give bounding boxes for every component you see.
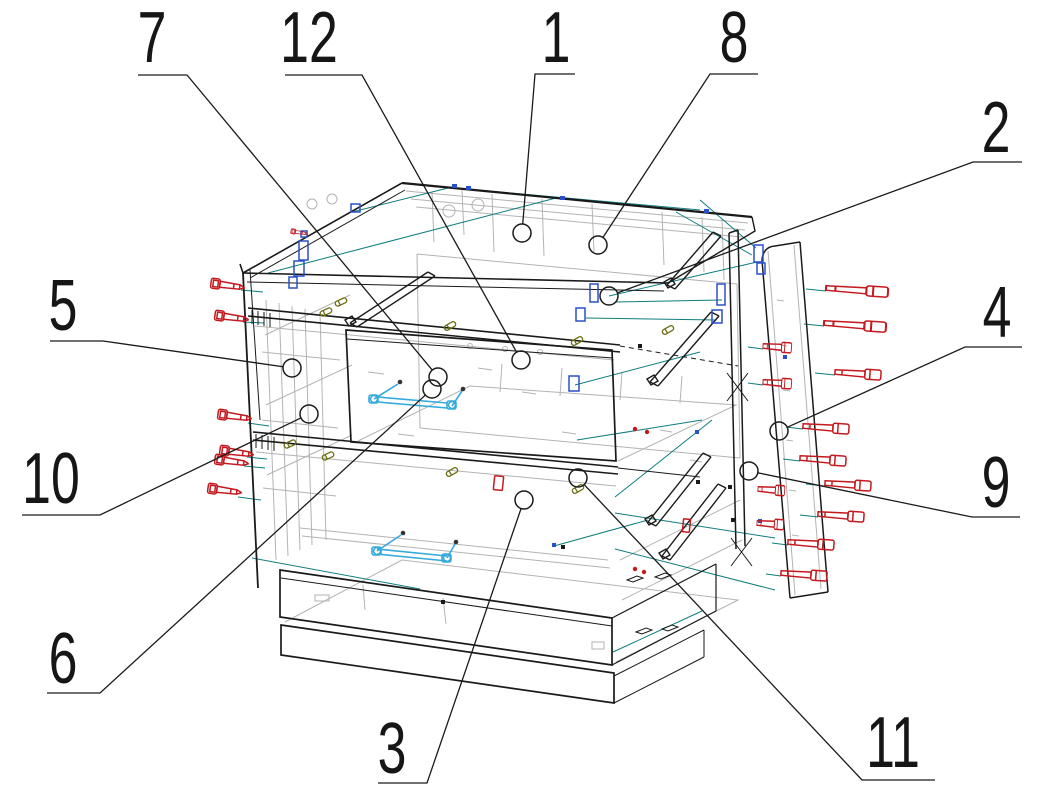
callout-label-4: 4 (983, 273, 1012, 353)
bottom-shelf-edge (253, 432, 618, 474)
confirmat-screw-icon (826, 283, 889, 297)
handle-screw-dot (454, 540, 459, 545)
handle-screw-dot (461, 387, 466, 392)
lower-drawer-box-front (280, 570, 612, 665)
callout-target-5 (283, 359, 301, 377)
confirmat-screw-icon (210, 278, 245, 293)
callout-label-3: 3 (378, 709, 407, 789)
handle-screw-dot (398, 380, 403, 385)
confirmat-screw-icon (800, 453, 847, 466)
support-rail (645, 453, 711, 526)
callout-leader-4 (787, 347, 1022, 427)
top-dowel-pins (432, 190, 724, 280)
callout-target-12 (512, 351, 530, 369)
callout-label-11: 11 (866, 703, 920, 783)
confirmat-screw-icon (818, 509, 865, 522)
confirmat-screw-icon (825, 478, 872, 491)
back-rail-hidden-edges (406, 191, 748, 237)
callout-target-4 (770, 422, 788, 440)
misc-slots (660, 430, 702, 462)
small-screw-icon (445, 466, 458, 477)
callout-target-10 (300, 405, 318, 423)
callout-label-5: 5 (49, 266, 78, 346)
callout-layer: 123456789101112 (22, 0, 1022, 789)
rail-hole (327, 194, 337, 204)
small-screw-icon (334, 297, 347, 308)
callout-leader-6 (47, 395, 425, 693)
drawer-handle-bracket-icon (372, 535, 455, 562)
plinth-front (281, 625, 614, 703)
cam-bolt-icon (493, 476, 503, 491)
pin-hole (538, 350, 543, 355)
callout-label-9: 9 (982, 443, 1011, 523)
guide-lines-layer (238, 187, 835, 652)
confirmat-screw-icon (803, 421, 850, 434)
callout-label-12: 12 (280, 0, 338, 78)
callout-target-11 (569, 469, 587, 487)
callout-target-8 (589, 236, 607, 254)
small-screw-icon (661, 324, 674, 335)
confirmat-screw-icon (207, 483, 242, 498)
rail-hole (307, 199, 317, 209)
callout-label-6: 6 (49, 619, 78, 699)
support-rail (647, 312, 719, 386)
callout-label-8: 8 (720, 0, 749, 78)
support-rail (664, 232, 721, 289)
callout-label-7: 7 (138, 0, 167, 78)
handle-screw-dot (401, 531, 406, 536)
confirmat-screw-icon (763, 341, 792, 353)
upper-front-slots (368, 368, 576, 436)
confirmat-screw-icon (835, 367, 882, 380)
callout-leader-1 (523, 74, 575, 224)
callout-target-1 (513, 224, 531, 242)
callout-leader-12 (285, 75, 517, 352)
small-screw-icon (443, 320, 456, 331)
callout-label-1: 1 (542, 0, 571, 78)
callout-leader-9 (758, 473, 1020, 517)
fitting-clip (627, 573, 678, 634)
confirmat-screw-icon (824, 318, 887, 332)
confirmat-screw-icon (763, 377, 792, 389)
callout-label-2: 2 (982, 88, 1011, 168)
callout-leader-2 (617, 162, 1022, 293)
top-front-edge (243, 273, 668, 283)
lower-right-hidden-rails (620, 500, 742, 600)
confirmat-screw-icon (291, 229, 309, 237)
callout-target-3 (515, 491, 533, 509)
exploded-view-svg: 123456789101112 (0, 0, 1049, 792)
upper-drawer-front (346, 330, 616, 461)
callout-leader-8 (603, 74, 758, 237)
rail-hole (443, 205, 455, 217)
confirmat-screw-icon (788, 537, 835, 550)
hidden-geometry-layer (255, 190, 821, 662)
assembly-diagram: 123456789101112 (0, 0, 1049, 792)
callout-label-10: 10 (22, 439, 80, 519)
left-cavity-horizontals (262, 352, 340, 496)
confirmat-screw-icon (217, 409, 252, 424)
slot (592, 642, 604, 649)
